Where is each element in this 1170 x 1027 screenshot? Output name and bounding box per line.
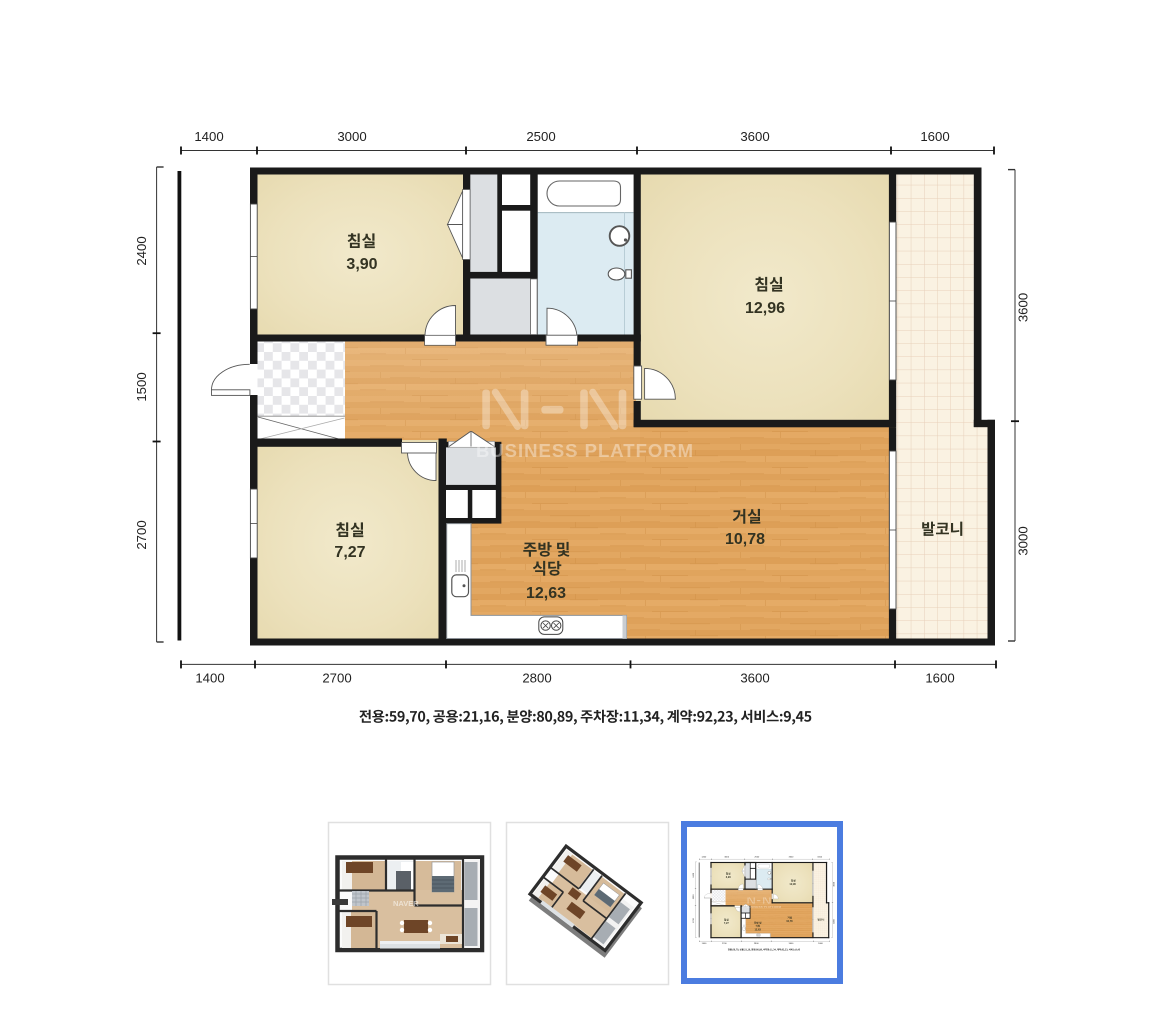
svg-text:2700: 2700 <box>134 520 149 549</box>
svg-text:1400: 1400 <box>194 129 223 144</box>
svg-text:7,27: 7,27 <box>334 544 365 561</box>
svg-text:1600: 1600 <box>925 671 954 686</box>
svg-text:12,63: 12,63 <box>526 585 566 602</box>
svg-text:3000: 3000 <box>337 129 366 144</box>
svg-text:NAVER: NAVER <box>393 899 419 908</box>
svg-text:1500: 1500 <box>134 372 149 401</box>
svg-text:3600: 3600 <box>1016 293 1031 322</box>
svg-text:2800: 2800 <box>522 671 551 686</box>
svg-text:10,78: 10,78 <box>725 531 765 548</box>
svg-text:1400: 1400 <box>195 671 224 686</box>
svg-text:2700: 2700 <box>322 671 351 686</box>
svg-text:2400: 2400 <box>134 236 149 265</box>
svg-text:3000: 3000 <box>1016 526 1031 555</box>
svg-text:3600: 3600 <box>740 671 769 686</box>
svg-text:2500: 2500 <box>526 129 555 144</box>
svg-text:BUSINESS PLATFORM: BUSINESS PLATFORM <box>476 440 694 461</box>
svg-text:3600: 3600 <box>740 129 769 144</box>
svg-text:3,90: 3,90 <box>346 256 377 273</box>
svg-text:12,96: 12,96 <box>745 300 785 317</box>
svg-text:1600: 1600 <box>920 129 949 144</box>
